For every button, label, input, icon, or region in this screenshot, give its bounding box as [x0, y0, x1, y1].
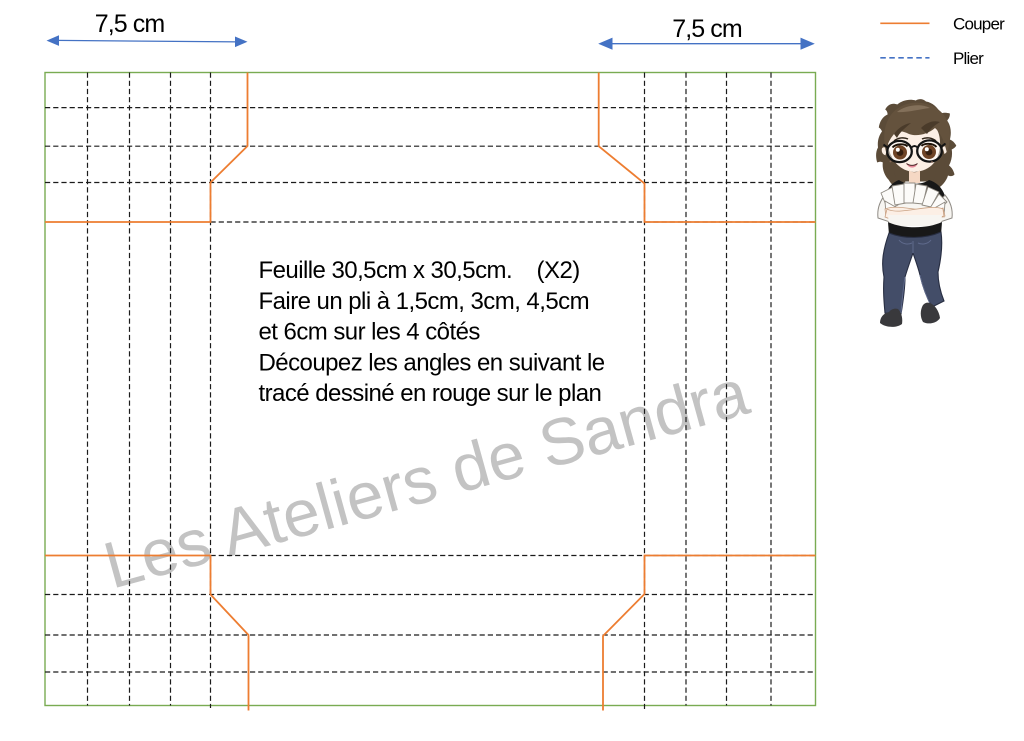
svg-text:Découpez les angles en suivant: Découpez les angles en suivant le — [259, 349, 605, 376]
svg-text:Plier: Plier — [953, 49, 984, 68]
svg-text:Couper: Couper — [953, 15, 1005, 34]
svg-text:tracé dessiné en rouge sur le: tracé dessiné en rouge sur le plan — [259, 380, 602, 407]
svg-text:Feuille 30,5cm x 30,5cm. (X: Feuille 30,5cm x 30,5cm. (X2) — [259, 257, 580, 284]
svg-text:et 6cm sur les 4 côtés: et 6cm sur les 4 côtés — [259, 319, 481, 346]
svg-text:7,5 cm: 7,5 cm — [672, 15, 742, 43]
svg-text:7,5 cm: 7,5 cm — [95, 10, 165, 38]
svg-text:Faire un pli à 1,5cm, 3cm, 4,5: Faire un pli à 1,5cm, 3cm, 4,5cm — [259, 288, 590, 315]
